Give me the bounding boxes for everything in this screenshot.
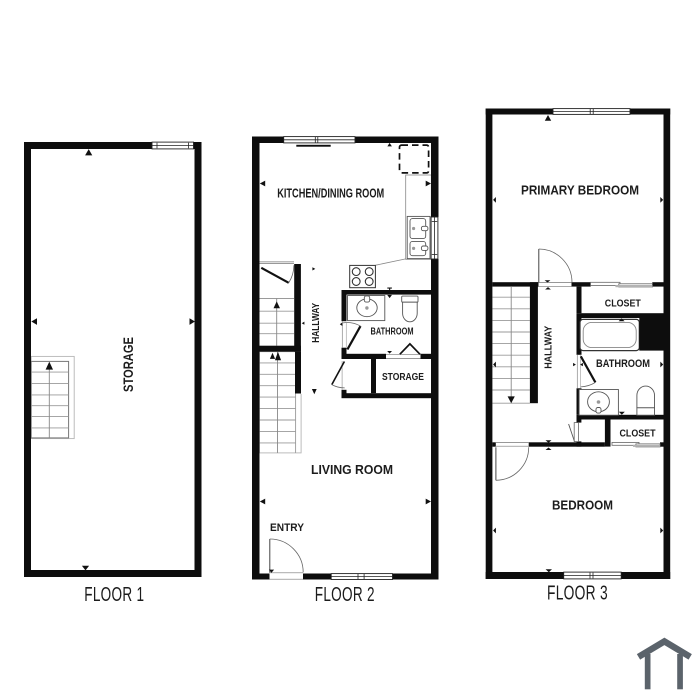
svg-text:PRIMARY BEDROOM: PRIMARY BEDROOM xyxy=(521,183,639,198)
svg-text:HALLWAY: HALLWAY xyxy=(310,303,322,343)
svg-text:FLOOR 1: FLOOR 1 xyxy=(84,584,144,606)
svg-text:CLOSET: CLOSET xyxy=(605,299,641,310)
svg-text:BEDROOM: BEDROOM xyxy=(552,497,613,512)
svg-text:CLOSET: CLOSET xyxy=(620,429,657,440)
svg-text:STORAGE: STORAGE xyxy=(382,371,424,383)
svg-text:STORAGE: STORAGE xyxy=(121,337,136,392)
svg-text:FLOOR 3: FLOOR 3 xyxy=(547,583,608,605)
svg-text:LIVING ROOM: LIVING ROOM xyxy=(311,462,393,477)
svg-text:BATHROOM: BATHROOM xyxy=(596,358,650,370)
svg-text:KITCHEN/DINING ROOM: KITCHEN/DINING ROOM xyxy=(277,186,384,201)
svg-text:BATHROOM: BATHROOM xyxy=(371,326,414,337)
svg-text:HALLWAY: HALLWAY xyxy=(543,326,555,369)
svg-text:ENTRY: ENTRY xyxy=(270,522,305,534)
svg-text:FLOOR 2: FLOOR 2 xyxy=(315,584,375,606)
